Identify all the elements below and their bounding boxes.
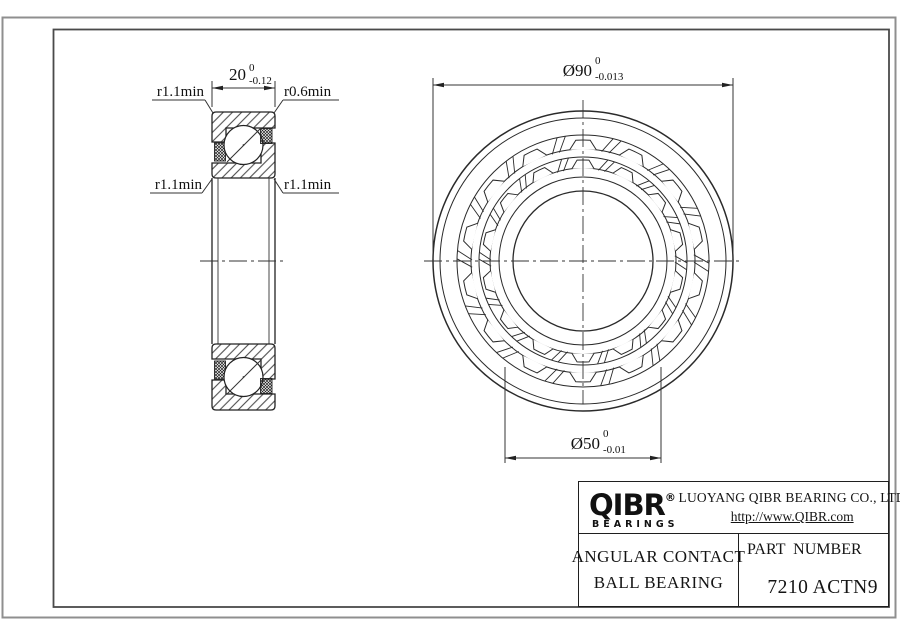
fillet-label-top-right: r0.6min xyxy=(284,84,332,100)
cross-section-view xyxy=(150,81,339,410)
outer-diameter-value: Ø90 xyxy=(563,61,592,80)
cage-pocket-bump xyxy=(648,193,665,212)
logo-subtext: BEARINGS xyxy=(589,519,679,530)
cage-pocket-separator xyxy=(457,250,472,267)
width-dimension-tol-upper: 0 xyxy=(249,62,255,74)
width-dimension-value: 20 xyxy=(229,65,246,84)
arrowhead-left-icon xyxy=(212,86,223,91)
bore-diameter-value: Ø50 xyxy=(571,434,600,453)
width-dimension-tol-lower: -0.12 xyxy=(249,75,272,87)
cage-block-top-right xyxy=(261,129,273,144)
cage-pocket-separator xyxy=(636,181,654,190)
cage-pocket-bump xyxy=(464,273,478,299)
leader-top-right xyxy=(274,100,339,113)
arrowhead-right-icon xyxy=(650,456,661,461)
cage-pocket-bump xyxy=(483,230,495,251)
fillet-label-bottom-left: r1.1min xyxy=(155,177,203,193)
company-website-link[interactable]: http://www.QIBR.com xyxy=(731,509,854,525)
outer-diameter-tol-upper: 0 xyxy=(595,55,601,67)
cage-pocket-bump xyxy=(662,180,682,202)
outer-diameter-tol-lower: -0.013 xyxy=(595,71,624,83)
part-number-label: PART NUMBER xyxy=(747,541,862,559)
cage-pocket-bump xyxy=(500,310,517,329)
cage-pocket-separator xyxy=(512,332,530,341)
arrowhead-right-icon xyxy=(722,83,733,88)
cage-pocket-separator xyxy=(694,255,709,272)
company-info: LUOYANG QIBR BEARING CO., LTD http://www… xyxy=(679,482,900,533)
cage-pocket-separator xyxy=(496,347,518,358)
arrowhead-left-icon xyxy=(433,83,444,88)
title-block-detail-row: ANGULAR CONTACT BALL BEARING PART NUMBER… xyxy=(579,534,888,606)
registered-trademark-icon: ® xyxy=(665,491,676,504)
section-top-half xyxy=(212,112,275,178)
cage-pocket-bump xyxy=(484,180,504,202)
cage-pocket-bump xyxy=(523,149,547,167)
company-logo: QIBR® BEARINGS xyxy=(579,482,679,533)
section-bottom-half xyxy=(212,344,275,410)
bore-diameter-tol-upper: 0 xyxy=(603,428,609,440)
cage-pocket-bump xyxy=(648,310,665,329)
logo-text: QIBR xyxy=(589,488,665,522)
cage-pocket-bump xyxy=(688,273,702,299)
product-name-line2: BALL BEARING xyxy=(594,573,724,593)
cage-pocket-bump xyxy=(533,339,553,354)
product-name-line1: ANGULAR CONTACT xyxy=(572,547,746,567)
company-name: LUOYANG QIBR BEARING CO., LTD xyxy=(679,490,900,506)
part-number-value: 7210 ACTN9 xyxy=(767,577,878,599)
title-block-header-row: QIBR® BEARINGS LUOYANG QIBR BEARING CO.,… xyxy=(579,482,888,534)
arrowhead-left-icon xyxy=(505,456,516,461)
fillet-label-top-left: r1.1min xyxy=(157,84,205,100)
cage-pocket-bump xyxy=(613,168,633,183)
cage-pocket-bump xyxy=(483,271,495,292)
cage-pocket-bump xyxy=(619,355,643,373)
cage-pocket-separator xyxy=(479,252,491,266)
cage-pocket-bump xyxy=(619,149,643,167)
drawing-sheet: 20 0 -0.12 Ø90 0 -0.013 Ø50 0 -0.01 r1.1… xyxy=(0,0,900,636)
bore-diameter-tol-lower: -0.01 xyxy=(603,444,626,456)
cage-pocket-bump xyxy=(464,223,478,249)
cage-pocket-bump xyxy=(613,339,633,354)
ball-center-bottom xyxy=(243,376,245,378)
cage-pocket-bump xyxy=(671,271,683,292)
ball-center-top xyxy=(243,144,245,146)
cage-pocket-bump xyxy=(500,193,517,212)
cage-pocket-bump xyxy=(523,355,547,373)
product-description: ANGULAR CONTACT BALL BEARING xyxy=(579,534,739,606)
title-block: QIBR® BEARINGS LUOYANG QIBR BEARING CO.,… xyxy=(578,481,889,607)
cage-block-bottom-right xyxy=(261,379,273,394)
part-number-cell: PART NUMBER 7210 ACTN9 xyxy=(739,534,888,606)
cage-pocket-separator xyxy=(675,256,687,270)
cage-pocket-bump xyxy=(533,168,553,183)
cage-pocket-bump xyxy=(688,223,702,249)
cage-pocket-bump xyxy=(671,230,683,251)
cage-pocket-bump xyxy=(662,320,682,342)
fillet-label-bottom-right: r1.1min xyxy=(284,177,332,193)
cage-pocket-separator xyxy=(647,164,669,175)
logo-wordmark: QIBR® xyxy=(589,485,679,518)
cage-pocket-bump xyxy=(484,320,504,342)
leader-top-left xyxy=(152,100,213,113)
